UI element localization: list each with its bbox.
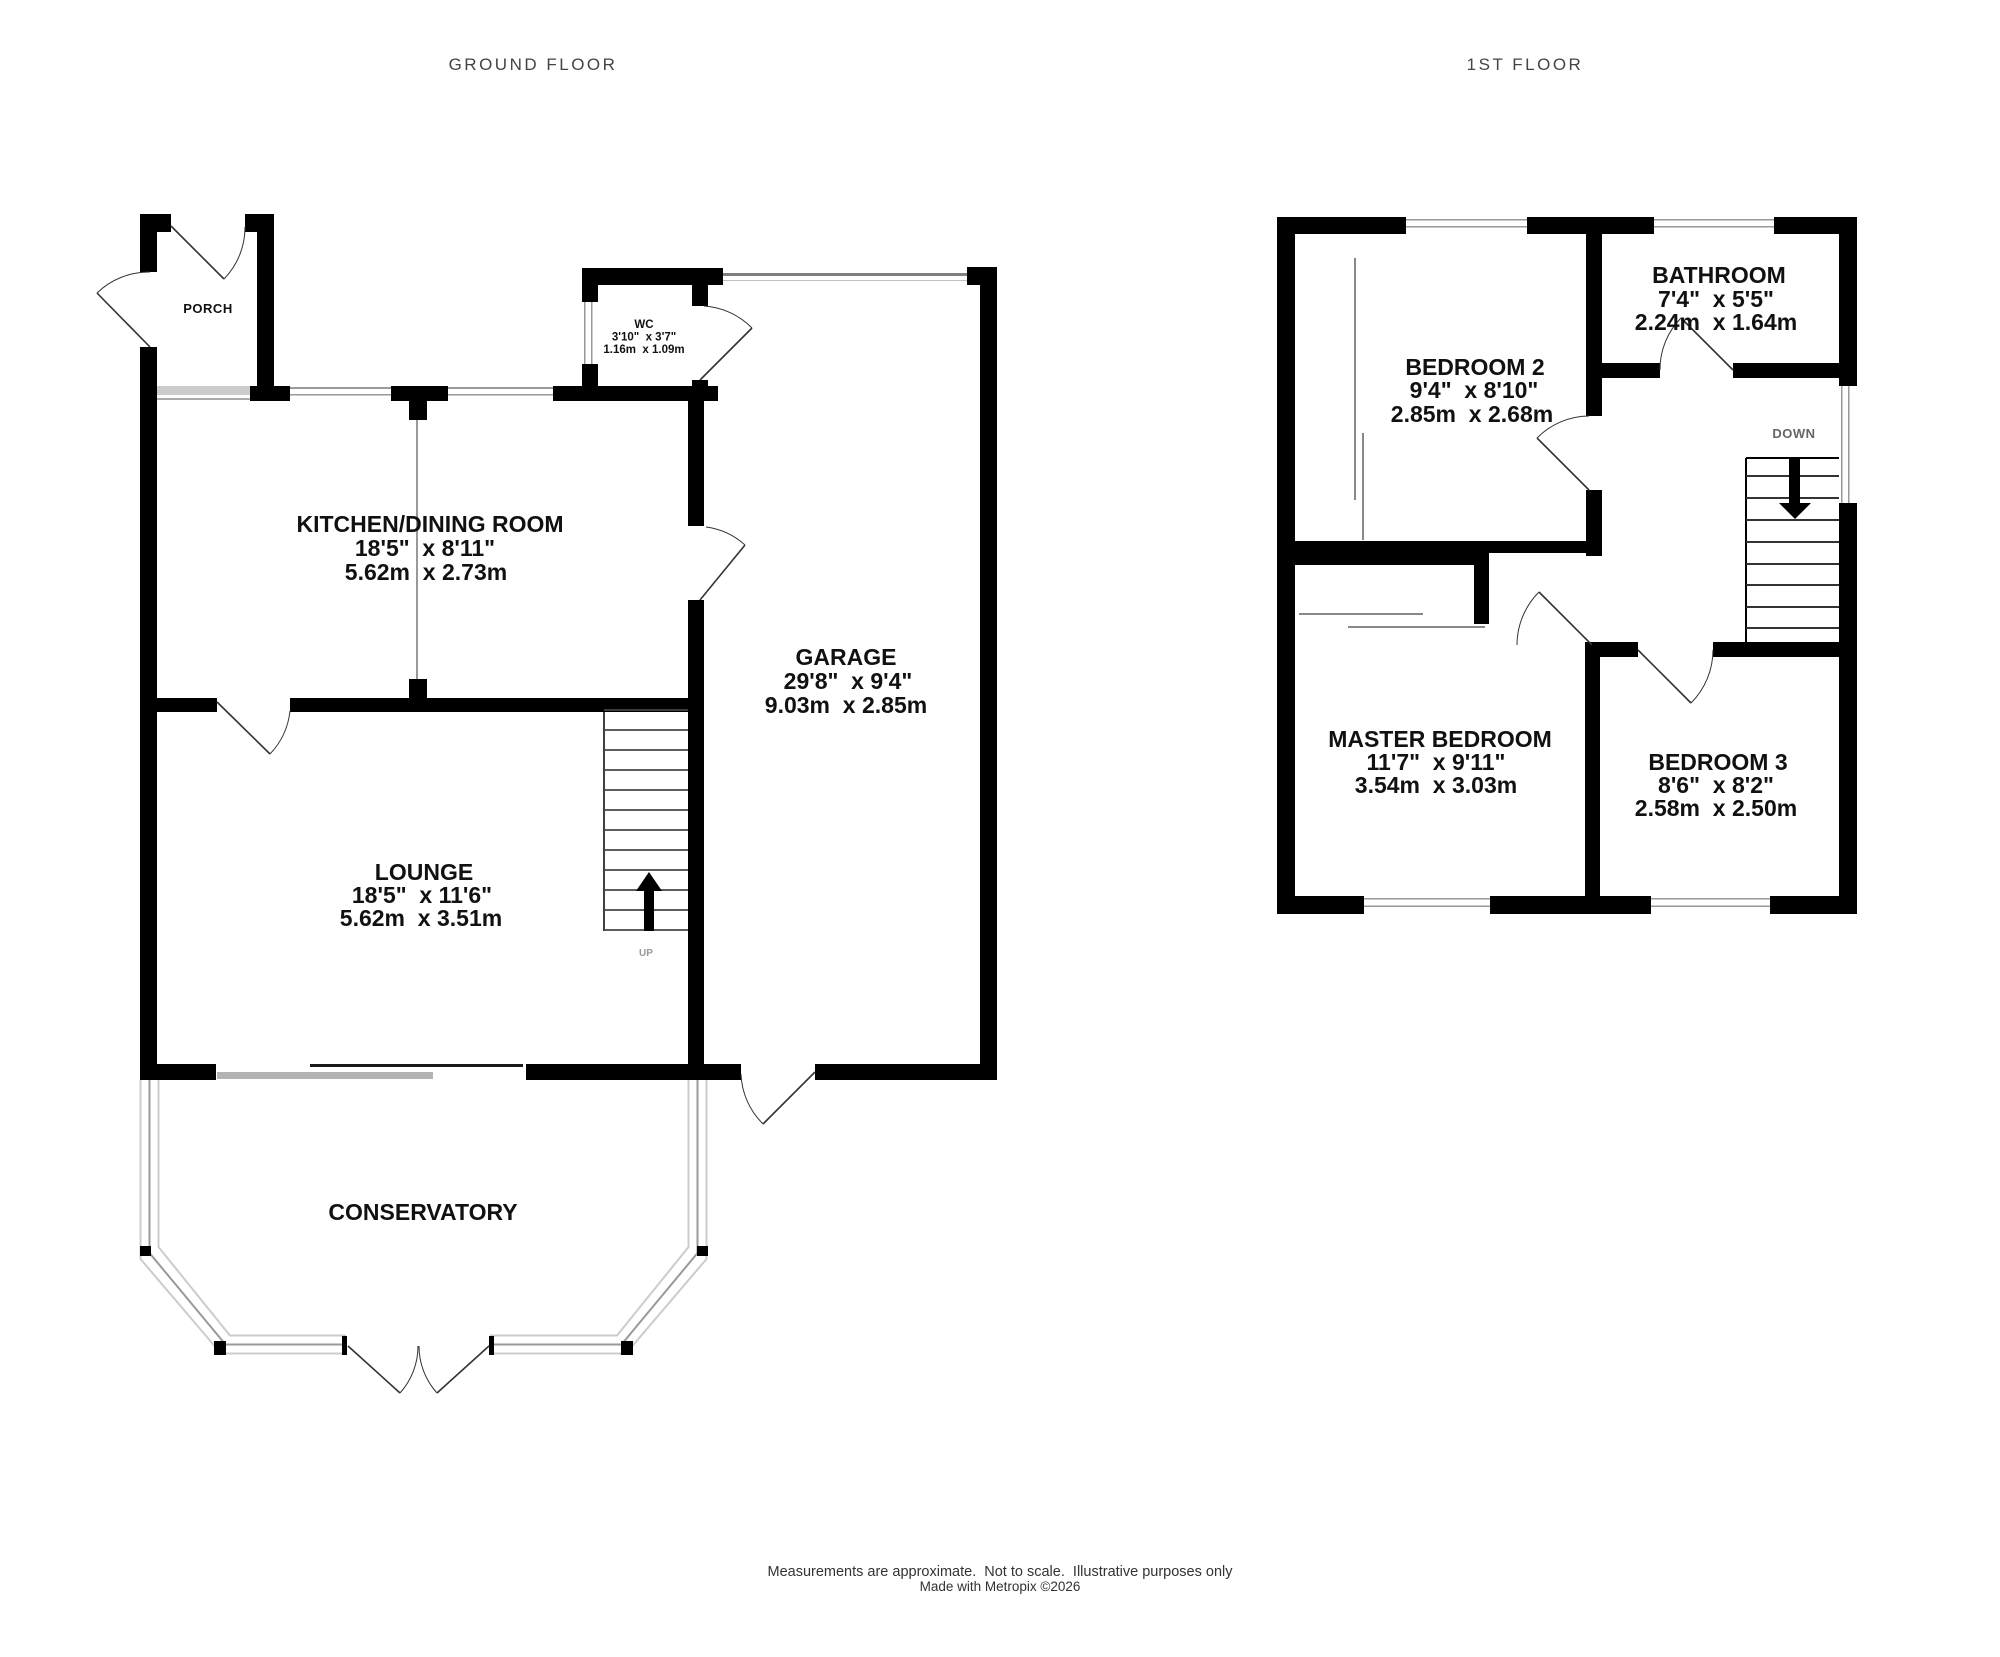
svg-text:Made with Metropix ©2026: Made with Metropix ©2026 xyxy=(920,1579,1081,1594)
svg-text:3'10" x 3'7": 3'10" x 3'7" xyxy=(612,332,676,344)
svg-text:5.62m x 2.73m: 5.62m x 2.73m xyxy=(345,559,507,585)
svg-text:GARAGE: GARAGE xyxy=(796,644,897,670)
svg-text:PORCH: PORCH xyxy=(183,301,232,316)
svg-text:2.58m x 2.50m: 2.58m x 2.50m xyxy=(1635,795,1797,821)
svg-text:UP: UP xyxy=(639,948,653,959)
svg-text:9.03m x 2.85m: 9.03m x 2.85m xyxy=(765,692,927,718)
svg-text:1ST FLOOR: 1ST FLOOR xyxy=(1467,55,1584,74)
svg-text:5.62m x 3.51m: 5.62m x 3.51m xyxy=(340,905,502,931)
svg-text:2.24m x 1.64m: 2.24m x 1.64m xyxy=(1635,309,1797,335)
svg-text:9'4" x 8'10": 9'4" x 8'10" xyxy=(1410,377,1539,403)
svg-text:2.85m x 2.68m: 2.85m x 2.68m xyxy=(1391,401,1553,427)
svg-text:DOWN: DOWN xyxy=(1772,426,1815,441)
svg-text:CONSERVATORY: CONSERVATORY xyxy=(328,1199,517,1225)
svg-text:KITCHEN/DINING ROOM: KITCHEN/DINING ROOM xyxy=(296,511,563,537)
svg-text:3.54m x 3.03m: 3.54m x 3.03m xyxy=(1355,772,1517,798)
svg-text:18'5" x 8'11": 18'5" x 8'11" xyxy=(355,535,495,561)
svg-text:WC: WC xyxy=(634,319,653,331)
svg-text:1.16m x 1.09m: 1.16m x 1.09m xyxy=(603,344,684,356)
svg-text:29'8" x 9'4": 29'8" x 9'4" xyxy=(784,668,913,694)
svg-text:GROUND FLOOR: GROUND FLOOR xyxy=(449,55,618,74)
svg-text:BATHROOM: BATHROOM xyxy=(1652,262,1786,288)
svg-text:Measurements are approximate.: Measurements are approximate. Not to sca… xyxy=(767,1564,1233,1580)
